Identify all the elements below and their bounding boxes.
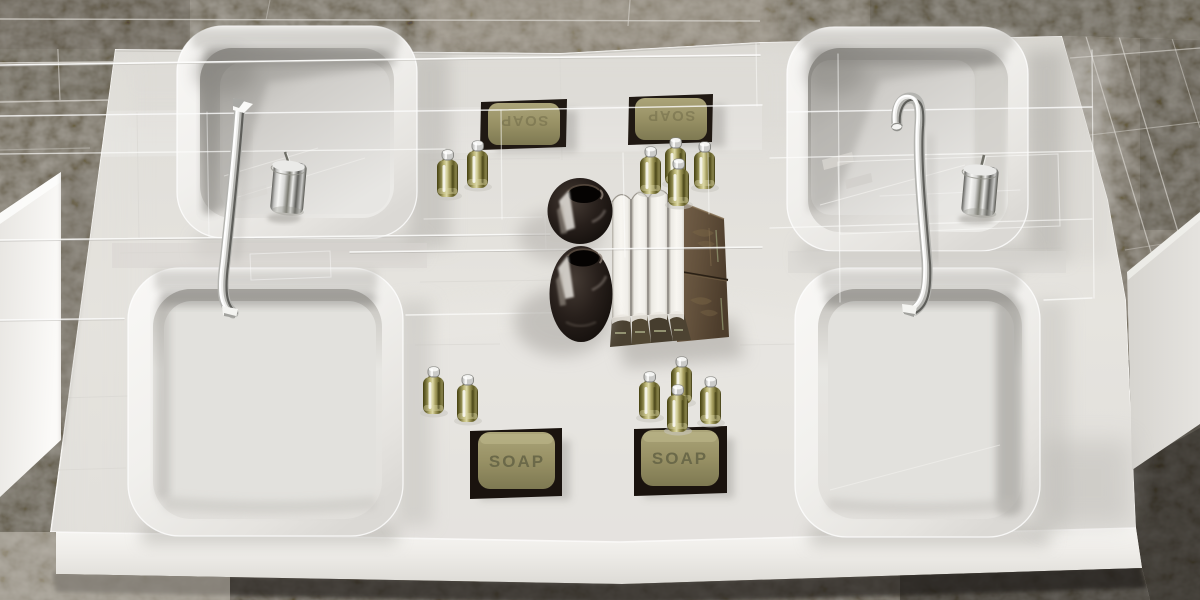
- svg-text:SOAP: SOAP: [647, 107, 696, 124]
- svg-text:SOAP: SOAP: [500, 112, 549, 129]
- svg-text:SOAP: SOAP: [489, 452, 545, 471]
- svg-text:SOAP: SOAP: [652, 449, 708, 468]
